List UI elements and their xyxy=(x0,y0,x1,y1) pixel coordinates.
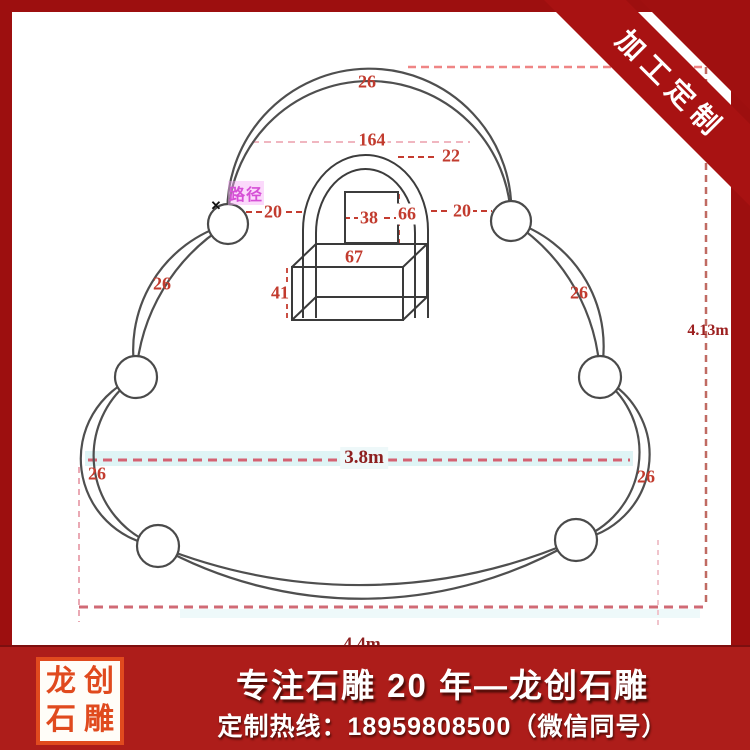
seal-char: 龙 xyxy=(42,663,80,701)
bead-bottom-right xyxy=(555,519,597,561)
seal-char: 雕 xyxy=(80,701,118,739)
banner-hotline: 定制热线：18959808500（微信同号） xyxy=(150,707,735,743)
dim-right-upper: 26 xyxy=(570,283,588,304)
path-annotation: 路径 xyxy=(228,181,264,205)
ring-beads xyxy=(115,201,621,567)
brand-seal: 龙 创 石 雕 xyxy=(36,657,124,745)
bead-bottom-left xyxy=(137,525,179,567)
banner-slogan: 专注石雕 20 年—龙创石雕 xyxy=(150,659,735,707)
dim-box-height: 41 xyxy=(269,283,291,304)
dim-square-height: 66 xyxy=(396,204,418,225)
dim-left-upper: 26 xyxy=(153,274,171,295)
dim-band: 22 xyxy=(442,146,460,167)
bead-right xyxy=(579,356,621,398)
seal-char: 石 xyxy=(42,701,80,739)
dim-gap-right: 20 xyxy=(451,201,473,222)
dim-total-height: 4.13m xyxy=(687,322,728,340)
product-image: 26 164 22 20 20 38 66 67 41 26 26 26 26 … xyxy=(0,0,750,750)
box-back-face xyxy=(316,244,427,297)
box-front-face xyxy=(292,267,403,320)
x-marker: ✕ xyxy=(211,198,222,214)
dim-box-width: 67 xyxy=(345,247,363,268)
seal-char: 创 xyxy=(80,663,118,701)
dim-gap-left: 20 xyxy=(262,202,284,223)
brand-banner: 龙 创 石 雕 专注石雕 20 年—龙创石雕 定制热线：18959808500（… xyxy=(0,645,750,750)
border-top xyxy=(0,0,750,12)
bead-left xyxy=(115,356,157,398)
bead-top-right xyxy=(491,201,531,241)
dim-bottom-right: 26 xyxy=(637,467,655,488)
border-left xyxy=(0,0,12,660)
arch-outer xyxy=(303,155,428,318)
center-arch xyxy=(303,155,428,318)
dim-total-width: 3.8m xyxy=(340,447,388,469)
ring-inner-curve xyxy=(94,81,640,585)
dim-square-width: 38 xyxy=(358,208,380,229)
dim-opening-width: 164 xyxy=(357,130,388,151)
highlight-band-bottom xyxy=(180,609,700,618)
dim-top-arc: 26 xyxy=(358,72,376,93)
dim-bottom-left: 26 xyxy=(88,464,106,485)
